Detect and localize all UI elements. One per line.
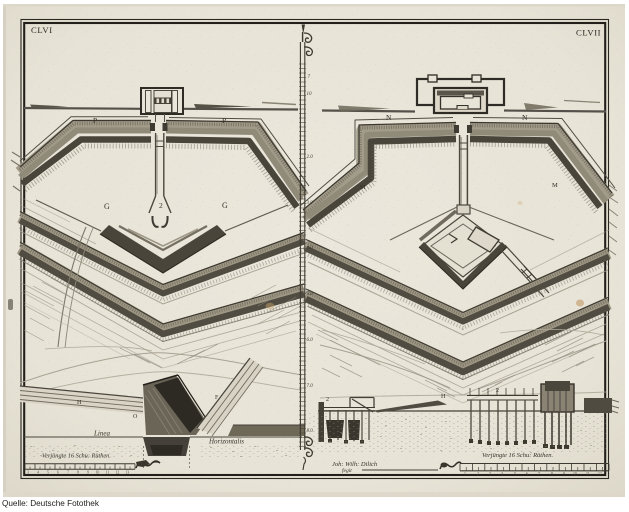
svg-text:10: 10 <box>573 472 577 476</box>
svg-text:Joh: Wilh: Dilich: Joh: Wilh: Dilich <box>332 461 377 468</box>
svg-text:4: 4 <box>37 471 39 475</box>
svg-text:N: N <box>386 113 392 122</box>
svg-text:10: 10 <box>307 92 313 97</box>
svg-text:G: G <box>222 201 228 210</box>
svg-text:6: 6 <box>526 472 528 476</box>
svg-text:6: 6 <box>57 471 59 475</box>
svg-text:N: N <box>522 113 528 122</box>
svg-text:Verjüngte 16 Schu: Rüthen.: Verjüngte 16 Schu: Rüthen. <box>482 452 553 459</box>
svg-text:2: 2 <box>477 472 479 476</box>
svg-text:3.0: 3.0 <box>307 201 314 206</box>
svg-text:O: O <box>133 414 138 420</box>
svg-text:5: 5 <box>514 472 516 476</box>
svg-text:11: 11 <box>586 472 590 476</box>
svg-text:4.0: 4.0 <box>307 246 314 251</box>
svg-text:2: 2 <box>159 201 163 210</box>
svg-text:12: 12 <box>598 472 602 476</box>
svg-text:P: P <box>222 116 226 125</box>
svg-text:7.0: 7.0 <box>307 384 314 389</box>
svg-text:Linea: Linea <box>93 430 110 438</box>
svg-text:Horizontalis: Horizontalis <box>208 438 244 446</box>
svg-text:H: H <box>441 394 446 400</box>
svg-text:fegit: fegit <box>342 467 352 474</box>
svg-text:G: G <box>104 202 110 211</box>
svg-text:5.0: 5.0 <box>307 292 314 297</box>
svg-text:7: 7 <box>538 472 540 476</box>
svg-text:2: 2 <box>496 388 499 394</box>
svg-text:7: 7 <box>67 471 69 475</box>
svg-text:9: 9 <box>563 472 565 476</box>
svg-text:Quelle: Deutsche Fotothek: Quelle: Deutsche Fotothek <box>2 499 100 508</box>
svg-text:6.0: 6.0 <box>307 338 314 343</box>
svg-text:9: 9 <box>87 471 89 475</box>
svg-text:8.0: 8.0 <box>307 429 314 434</box>
svg-text:3: 3 <box>489 472 491 476</box>
svg-text:10: 10 <box>96 471 100 475</box>
svg-text:Verjüngte 16 Schu: Rüthen.: Verjüngte 16 Schu: Rüthen. <box>42 453 111 460</box>
svg-text:3: 3 <box>27 471 29 475</box>
svg-text:CLVII: CLVII <box>576 28 601 38</box>
svg-text:1: 1 <box>464 472 466 476</box>
svg-text:13: 13 <box>126 471 130 475</box>
svg-text:M: M <box>552 182 558 189</box>
svg-text:4: 4 <box>501 472 503 476</box>
svg-text:8: 8 <box>551 472 553 476</box>
svg-text:5: 5 <box>47 471 49 475</box>
svg-text:11: 11 <box>106 471 110 475</box>
svg-text:8: 8 <box>77 471 79 475</box>
svg-text:CLVI: CLVI <box>31 25 53 35</box>
svg-text:H: H <box>77 400 82 406</box>
svg-text:2.0: 2.0 <box>307 155 314 160</box>
svg-text:P: P <box>93 116 97 125</box>
svg-text:2: 2 <box>326 397 329 403</box>
svg-text:12: 12 <box>116 471 120 475</box>
svg-text:M: M <box>360 184 366 191</box>
